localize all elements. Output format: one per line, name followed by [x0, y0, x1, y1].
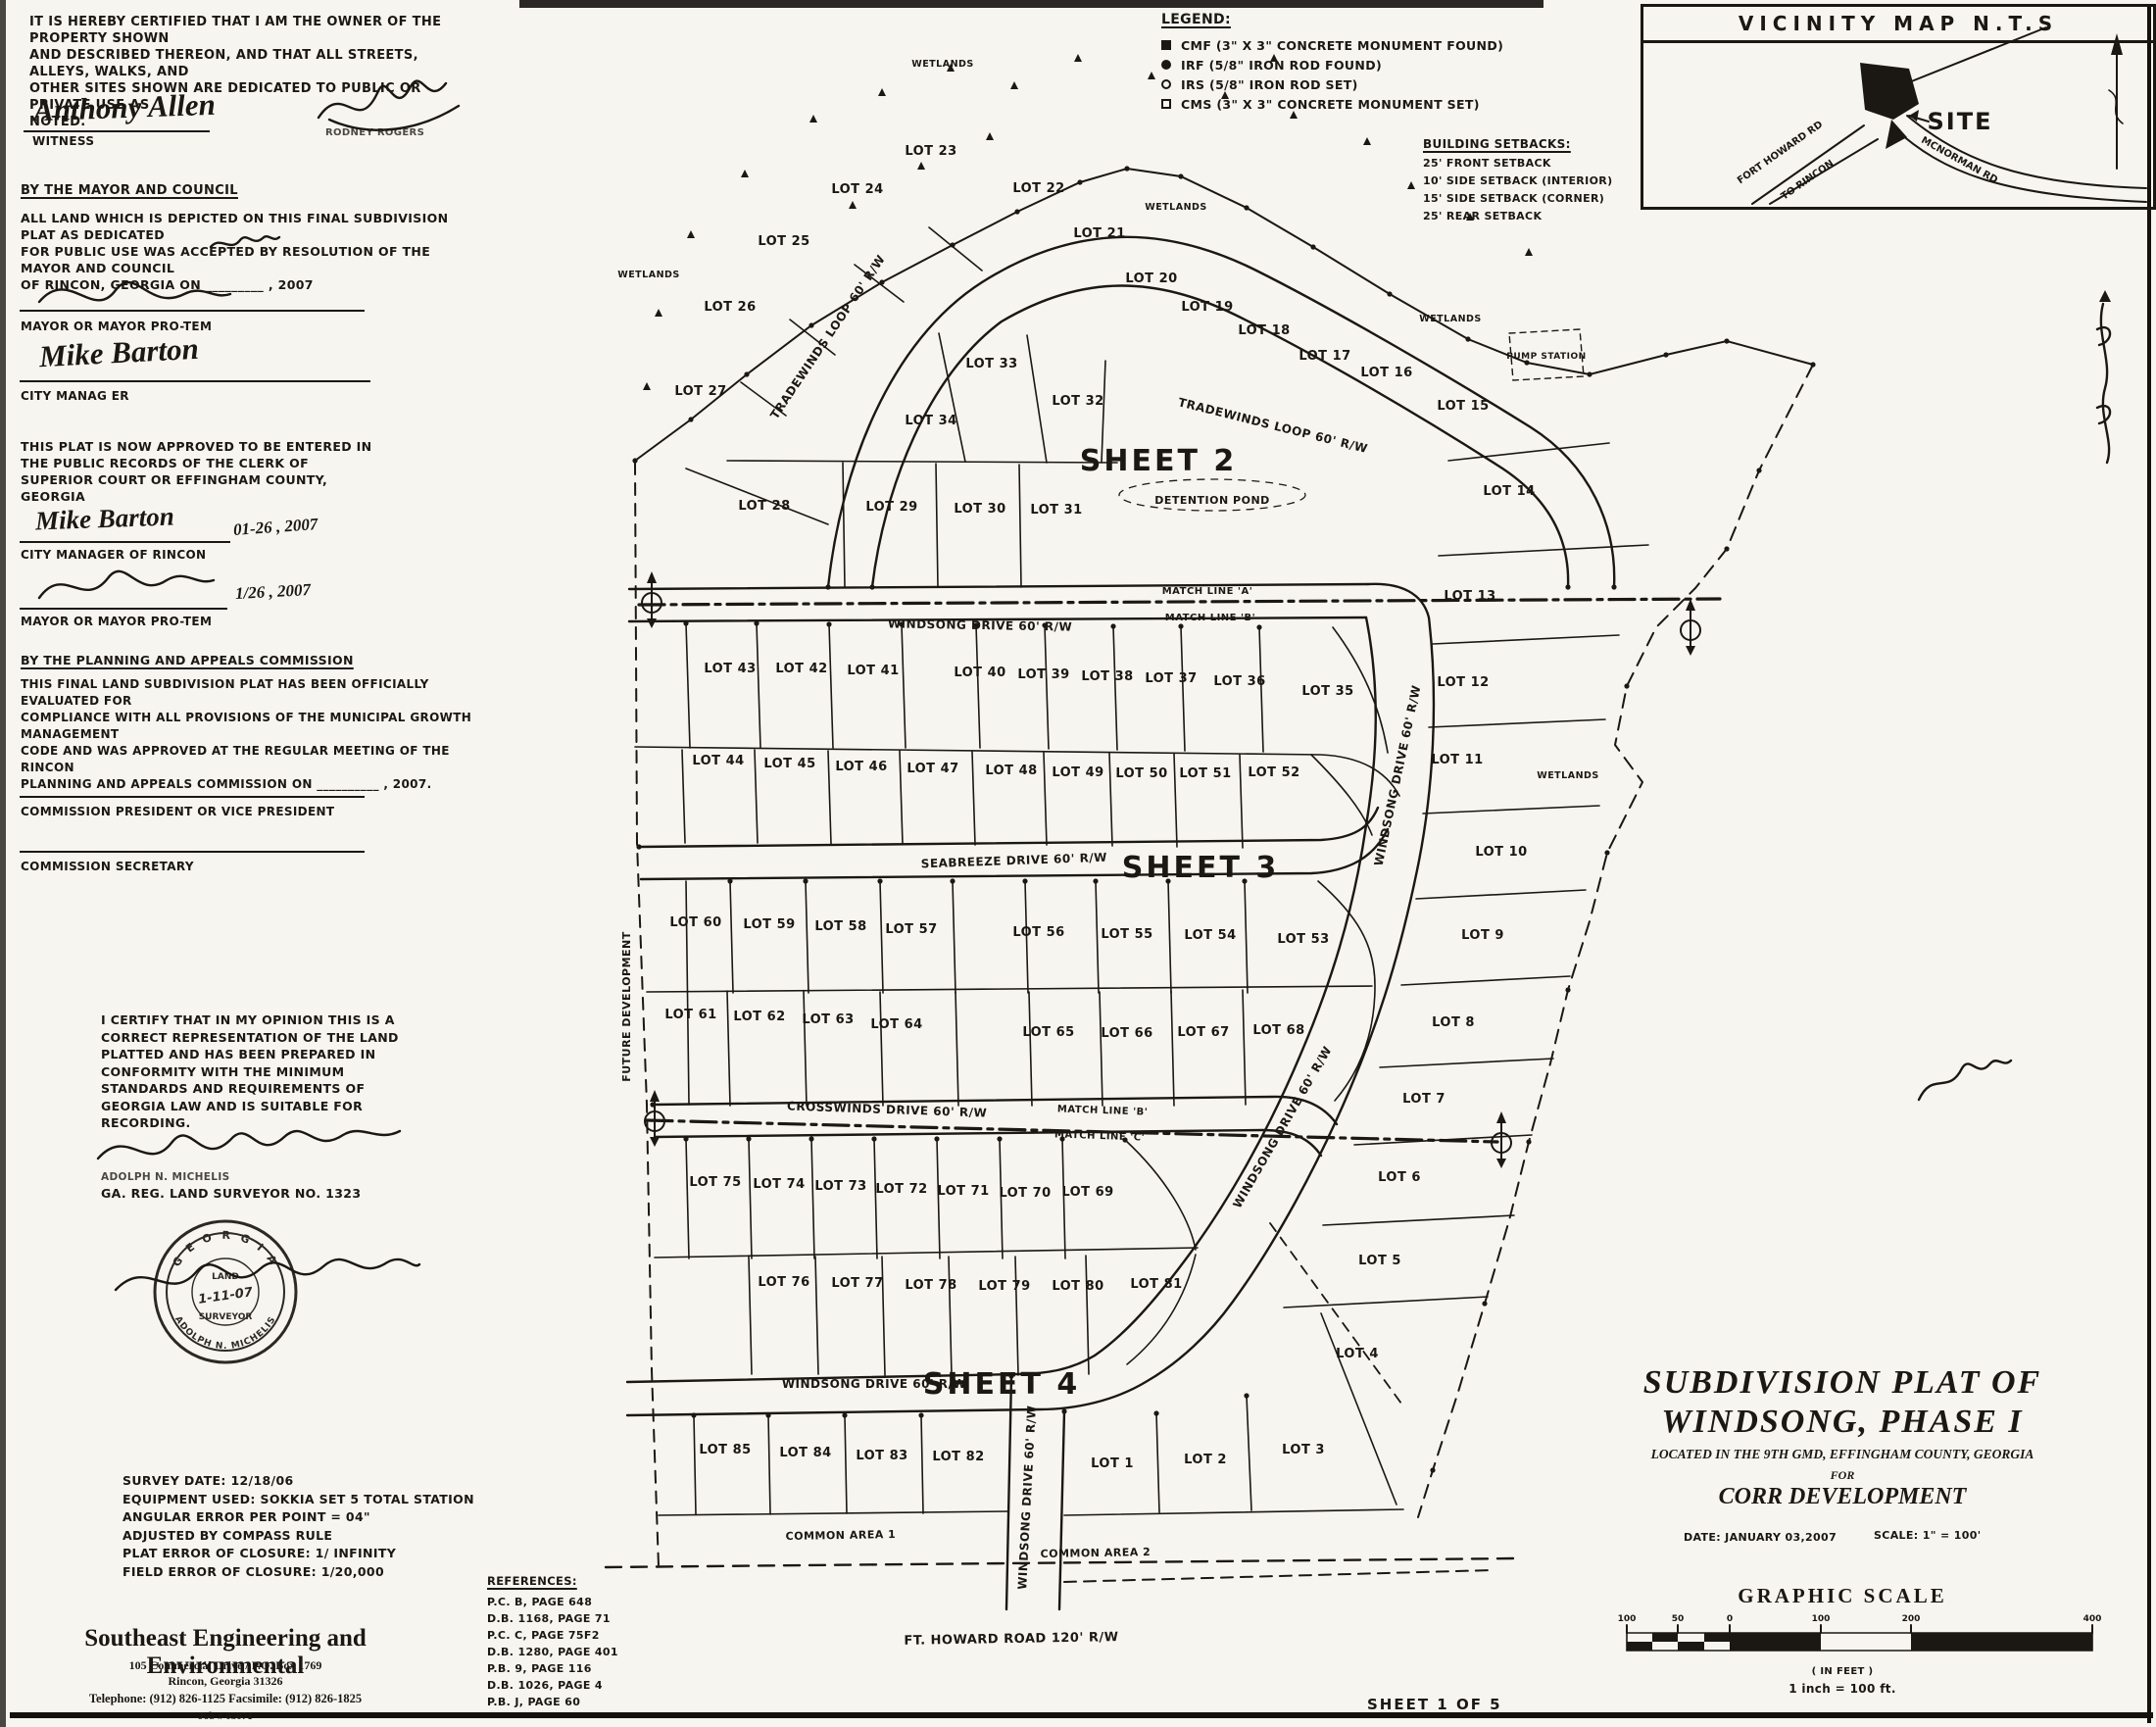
plat-line: [730, 881, 733, 993]
lot-label: LOT 23: [905, 144, 956, 159]
scale-tick-label: 100: [1618, 1614, 1637, 1624]
lot-label: LOT 7: [1402, 1092, 1445, 1107]
lot-label: LOT 46: [835, 760, 887, 774]
plat-line: [955, 992, 958, 1106]
plat-line: [655, 1248, 1198, 1258]
lot-label: LOT 21: [1073, 226, 1125, 241]
lot-label: LOT 79: [978, 1279, 1030, 1294]
plat-line: [921, 1415, 923, 1513]
lot-label: LOT 73: [814, 1179, 866, 1194]
survey-point-dot: [1256, 624, 1261, 629]
plat-line: [829, 624, 833, 748]
plat-sheet: SITEFORT HOWARD RDTO RINCONMCNORMAN RD10…: [0, 0, 2156, 1727]
lot-label: LOT 40: [954, 666, 1005, 680]
lot-label: LOT 50: [1115, 766, 1167, 781]
lot-label: LOT 47: [906, 762, 958, 776]
plat-line: [727, 461, 1117, 463]
lot-label: LOT 42: [775, 662, 827, 676]
match-line-north-icon: [1681, 599, 1700, 656]
lot-label: LOT 3: [1282, 1443, 1325, 1457]
setbacks-block: BUILDING SETBACKS: 25' FRONT SETBACK10' …: [1423, 137, 1612, 225]
legend-item: IRS (5/8" IRON ROD SET): [1161, 74, 1503, 94]
survey-point-dot: [691, 1412, 696, 1417]
street-label: COMMON AREA 2: [1040, 1546, 1151, 1560]
svg-text:LAND: LAND: [212, 1272, 239, 1282]
match-line-north-icon: [645, 1090, 664, 1147]
street-label: WETLANDS: [1145, 202, 1207, 213]
scale-bar-cell: [1704, 1642, 1730, 1651]
plat-line: [1045, 625, 1049, 749]
surveyor-name-label: ADOLPH N. MICHELIS: [101, 1171, 230, 1183]
plat-line: [639, 808, 1378, 847]
legend-item: CMS (3" X 3" CONCRETE MONUMENT SET): [1161, 94, 1503, 114]
scale-bar-cell: [1704, 1633, 1730, 1642]
street-label: SHEET 4: [923, 1367, 1080, 1402]
survey-point-dot: [1110, 623, 1115, 628]
plat-line: [806, 881, 808, 993]
plat-line: [653, 1097, 1337, 1124]
list-item: P.B. J, PAGE 60: [487, 1694, 618, 1710]
lot-label: LOT 59: [743, 917, 795, 932]
list-item: 25' FRONT SETBACK: [1423, 155, 1612, 173]
plat-line: [1156, 1413, 1159, 1512]
scale-tick-label: 200: [1902, 1614, 1921, 1624]
plat-line: [2099, 290, 2111, 302]
title-line-2: WINDSONG, PHASE I: [1568, 1404, 2117, 1441]
lot-label: LOT 9: [1461, 928, 1504, 943]
survey-point-dot: [842, 1412, 847, 1417]
lot-label: LOT 71: [937, 1184, 989, 1199]
survey-point-dot: [1565, 987, 1570, 992]
wetland-marker-icon: [1407, 181, 1415, 189]
plat-line: [1380, 1059, 1553, 1067]
plat-line: [1171, 991, 1174, 1106]
legend-items: CMF (3" X 3" CONCRETE MONUMENT FOUND)IRF…: [1161, 35, 1503, 114]
wetland-marker-icon: [687, 230, 695, 238]
lot-label: LOT 30: [954, 502, 1005, 517]
wetland-marker-icon: [809, 115, 817, 123]
lot-label: LOT 82: [932, 1450, 984, 1464]
survey-point-dot: [746, 1136, 751, 1141]
plat-line: [1247, 1396, 1251, 1510]
survey-point-dot: [1526, 1139, 1531, 1144]
plat-line: [639, 599, 1720, 605]
plat-line: [1006, 1376, 1011, 1609]
city-manager-signature-line-2: [20, 541, 230, 543]
list-item: 15' SIDE SETBACK (CORNER): [1423, 190, 1612, 208]
surveyor-registration-label: GA. REG. LAND SURVEYOR NO. 1323: [101, 1186, 361, 1201]
lot-label: LOT 19: [1181, 300, 1233, 315]
references-title: REFERENCES:: [487, 1574, 618, 1588]
legend-item-text: CMS (3" X 3" CONCRETE MONUMENT SET): [1181, 97, 1480, 112]
plat-line: [976, 625, 980, 748]
survey-point-dot: [871, 1136, 876, 1141]
wetland-marker-icon: [1363, 137, 1371, 145]
plat-line: [1919, 1061, 2011, 1100]
survey-point-dot: [1387, 291, 1392, 296]
commission-secretary-line: [20, 851, 365, 853]
plat-line: [1259, 627, 1263, 752]
svg-text:G E O R G I A: G E O R G I A: [170, 1229, 280, 1269]
plat-line: [1270, 1223, 1401, 1404]
survey-point-dot: [808, 1136, 813, 1141]
title-for-label: FOR: [1568, 1468, 2117, 1483]
plat-line: [1127, 1255, 1196, 1364]
mayor-council-text: ALL LAND WHICH IS DEPICTED ON THIS FINAL…: [21, 210, 471, 293]
street-label: WINDSONG DRIVE 60' R/W: [1372, 684, 1424, 867]
lot-label: LOT 1: [1091, 1456, 1134, 1471]
lot-label: LOT 35: [1301, 684, 1353, 699]
lot-label: LOT 31: [1030, 503, 1082, 518]
plat-line: [1100, 992, 1102, 1106]
street-label: CROSSWINDS DRIVE 60' R/W: [787, 1099, 988, 1119]
survey-point-dot: [683, 1136, 688, 1141]
scan-left-edge: [0, 0, 6, 1727]
lot-label: LOT 53: [1277, 932, 1329, 947]
lot-label: LOT 26: [704, 300, 756, 315]
survey-point-dot: [1014, 209, 1019, 214]
survey-point-dot: [688, 417, 693, 421]
legend-item: CMF (3" X 3" CONCRETE MONUMENT FOUND): [1161, 35, 1503, 55]
commission-president-line: [20, 796, 365, 798]
street-label: WINDSONG DRIVE 60' R/W: [1230, 1044, 1334, 1210]
wetland-marker-icon: [917, 162, 925, 170]
plat-line: [1019, 465, 1021, 587]
lot-label: LOT 39: [1017, 667, 1069, 682]
list-item: P.C. B, PAGE 648: [487, 1594, 618, 1610]
lot-label: LOT 60: [669, 915, 721, 930]
plat-line: [845, 1415, 847, 1513]
plat-line: [872, 285, 1568, 587]
survey-point-dot: [1663, 352, 1668, 357]
lot-label: LOT 58: [814, 919, 866, 934]
lot-label: LOT 36: [1213, 674, 1265, 689]
plat-line: [1240, 755, 1243, 848]
survey-point-dot: [1565, 584, 1570, 589]
plat-line: [1311, 755, 1372, 835]
plat-line: [727, 991, 730, 1106]
lot-label: LOT 12: [1437, 675, 1489, 690]
lot-label: LOT 80: [1052, 1279, 1103, 1294]
street-label: WETLANDS: [911, 59, 974, 70]
legend-block: LEGEND: CMF (3" X 3" CONCRETE MONUMENT F…: [1161, 12, 1503, 114]
title-scale: SCALE: 1" = 100': [1874, 1529, 1981, 1542]
wetland-marker-icon: [1074, 54, 1082, 62]
legend-title: LEGEND:: [1161, 12, 1503, 27]
plat-line: [1113, 626, 1117, 750]
plat-line: [39, 571, 214, 598]
street-label: WETLANDS: [1537, 770, 1599, 781]
street-label: MATCH LINE 'C': [1054, 1129, 1145, 1143]
lot-label: LOT 44: [692, 754, 744, 768]
lot-label: LOT 64: [870, 1017, 922, 1032]
plat-line: [98, 1131, 400, 1159]
plat-line: [815, 1257, 818, 1374]
mayor-signature-line-2: [20, 608, 227, 610]
planning-commission-text: THIS FINAL LAND SUBDIVISION PLAT HAS BEE…: [21, 676, 481, 793]
lot-label: LOT 14: [1483, 484, 1535, 499]
survey-point-dot: [803, 878, 808, 883]
plat-line: [1321, 1313, 1396, 1505]
mayor-council-heading: BY THE MAYOR AND COUNCIL: [21, 183, 238, 198]
commission-secretary-label: COMMISSION SECRETARY: [21, 860, 194, 873]
survey-point-dot: [826, 621, 831, 626]
lot-label: LOT 83: [856, 1449, 907, 1463]
scale-tick-label: 400: [2083, 1614, 2102, 1624]
city-manager-of-rincon-label: CITY MANAGER OF RINCON: [21, 548, 206, 562]
street-label: FT. HOWARD ROAD 120' R/W: [904, 1630, 1118, 1649]
planning-commission-heading: BY THE PLANNING AND APPEALS COMMISSION: [21, 653, 354, 667]
lot-label: LOT 72: [875, 1182, 927, 1197]
plat-line: [627, 617, 1376, 1382]
lot-label: LOT 56: [1012, 925, 1064, 940]
lot-label: LOT 33: [965, 357, 1017, 371]
street-label: TRADEWINDS LOOP 60' R/W: [767, 252, 888, 421]
survey-point-dot: [934, 1136, 939, 1141]
plat-line: [880, 992, 883, 1106]
plat-line: [686, 623, 690, 748]
street-label: MATCH LINE 'B': [1165, 613, 1255, 623]
survey-point-dot: [1061, 1408, 1066, 1413]
clerk-approval-text: THIS PLAT IS NOW APPROVED TO BE ENTERED …: [21, 438, 432, 505]
street-label: WETLANDS: [1419, 314, 1482, 324]
wetland-marker-icon: [986, 132, 994, 140]
title-date: DATE: JANUARY 03,2007: [1684, 1531, 1837, 1544]
lot-label: LOT 5: [1358, 1254, 1401, 1268]
survey-info-block: SURVEY DATE: 12/18/06 EQUIPMENT USED: SO…: [122, 1472, 534, 1581]
lot-label: LOT 52: [1248, 765, 1299, 780]
lot-label: LOT 6: [1378, 1170, 1421, 1185]
title-client-name: CORR DEVELOPMENT: [1568, 1484, 2117, 1510]
list-item: P.C. C, PAGE 75F2: [487, 1627, 618, 1644]
lot-label: LOT 66: [1101, 1026, 1152, 1041]
graphic-scale-in-feet: ( IN FEET ): [1705, 1666, 1980, 1677]
survey-point-dot: [950, 878, 955, 883]
witness-signature-line: [24, 130, 210, 132]
survey-point-dot: [1724, 546, 1729, 551]
plat-line: [686, 469, 828, 524]
survey-point-dot: [1178, 623, 1183, 628]
survey-point-dot: [1022, 878, 1027, 883]
lot-label: LOT 55: [1101, 927, 1152, 942]
survey-point-dot: [1624, 683, 1629, 688]
lot-label: LOT 68: [1252, 1023, 1304, 1038]
lot-label: LOT 13: [1444, 589, 1495, 604]
plat-line: [1429, 719, 1605, 727]
survey-point-dot: [1482, 1301, 1487, 1306]
firm-address-2: Rincon, Georgia 31326: [10, 1674, 441, 1689]
plat-line: [939, 333, 965, 462]
plat-line: [1044, 753, 1047, 845]
lot-label: LOT 76: [758, 1275, 809, 1290]
survey-point-dot: [918, 1412, 923, 1417]
references-items: P.C. B, PAGE 648D.B. 1168, PAGE 71P.C. C…: [487, 1594, 618, 1710]
lot-label: LOT 43: [704, 662, 756, 676]
lot-label: LOT 67: [1177, 1025, 1229, 1040]
square-open-icon: [1161, 99, 1171, 109]
plat-line: [694, 1415, 696, 1514]
circle-filled-icon: [1161, 60, 1171, 70]
survey-point-dot: [1178, 173, 1183, 178]
plat-line: [828, 751, 831, 844]
scale-bar-segment: [1730, 1633, 1821, 1651]
survey-point-dot: [765, 1412, 770, 1417]
plat-line: [635, 463, 659, 1566]
firm-job-number: Job # 05071: [10, 1710, 441, 1722]
survey-point-dot: [754, 620, 759, 625]
street-label: MATCH LINE 'A': [1162, 586, 1253, 597]
plat-line: [874, 1139, 877, 1258]
legend-item-text: CMF (3" X 3" CONCRETE MONUMENT FOUND): [1181, 38, 1503, 53]
lot-label: LOT 78: [905, 1278, 956, 1293]
street-label: WINDSONG DRIVE 60' R/W: [1015, 1405, 1039, 1590]
survey-point-dot: [1124, 166, 1129, 171]
plat-line: [882, 1257, 885, 1375]
plat-line: [1423, 806, 1599, 814]
lot-label: LOT 10: [1475, 845, 1527, 860]
street-label: WETLANDS: [617, 270, 680, 280]
plat-line: [1181, 626, 1185, 751]
lot-label: LOT 85: [699, 1443, 751, 1457]
lot-label: LOT 27: [674, 384, 726, 399]
street-label: MATCH LINE 'B': [1057, 1104, 1149, 1117]
lot-label: LOT 18: [1238, 323, 1290, 338]
lot-label: LOT 34: [905, 414, 956, 428]
lot-label: LOT 74: [753, 1177, 805, 1192]
street-label: SHEET 2: [1080, 444, 1237, 478]
survey-point-dot: [879, 279, 884, 284]
survey-point-dot: [869, 584, 874, 589]
plat-line: [1086, 1256, 1089, 1374]
plat-line: [1125, 1140, 1196, 1250]
plat-line: [1059, 1411, 1064, 1609]
lot-label: LOT 84: [779, 1446, 831, 1460]
title-line-1: SUBDIVISION PLAT OF: [1568, 1364, 2117, 1402]
wetland-marker-icon: [655, 309, 662, 317]
plat-line: [1174, 754, 1177, 847]
plat-line: [1323, 1215, 1514, 1225]
plat-line: [953, 881, 955, 993]
survey-point-dot: [1077, 179, 1082, 184]
plat-line: [1284, 1297, 1488, 1308]
scale-bar-cell: [1652, 1642, 1678, 1651]
plat-line: [949, 1257, 952, 1375]
wetland-marker-icon: [1525, 248, 1533, 256]
legend-item: IRF (5/8" IRON ROD FOUND): [1161, 55, 1503, 74]
plat-line: [1245, 881, 1248, 993]
match-line-north-icon: [642, 571, 661, 628]
survey-point-dot: [744, 371, 749, 376]
plat-line: [1439, 545, 1648, 556]
survey-point-dot: [727, 878, 732, 883]
survey-point-dot: [1611, 584, 1616, 589]
plat-line: [936, 464, 938, 587]
title-located-line: LOCATED IN THE 9TH GMD, EFFINGHAM COUNTY…: [1568, 1447, 2117, 1462]
plat-line: [1354, 1135, 1532, 1145]
plat-line: [900, 751, 903, 844]
lot-label: LOT 32: [1052, 394, 1103, 409]
city-manager-signature-2: Mike Barton: [35, 502, 175, 537]
vicinity-map: VICINITY MAP N.T.S: [1641, 4, 2156, 210]
survey-point-dot: [1310, 244, 1315, 249]
lot-label: LOT 4: [1336, 1347, 1379, 1361]
graphic-scale-inch-note: 1 inch = 100 ft.: [1705, 1682, 1980, 1696]
lot-label: LOT 24: [831, 182, 883, 197]
references-block: REFERENCES: P.C. B, PAGE 648D.B. 1168, P…: [487, 1574, 618, 1710]
list-item: D.B. 1168, PAGE 71: [487, 1610, 618, 1627]
lot-label: LOT 2: [1184, 1453, 1227, 1467]
wetland-marker-icon: [1010, 81, 1018, 89]
plat-line: [755, 750, 758, 843]
lot-label: LOT 61: [664, 1008, 716, 1022]
lot-label: LOT 28: [738, 499, 790, 514]
wetland-marker-icon: [1148, 72, 1155, 79]
commission-president-label: COMMISSION PRESIDENT OR VICE PRESIDENT: [21, 805, 334, 818]
street-label: SEABREEZE DRIVE 60' R/W: [921, 851, 1108, 871]
survey-point-dot: [825, 584, 830, 589]
survey-point-dot: [1587, 371, 1592, 376]
street-label: PUMP STATION: [1506, 352, 1586, 362]
witness-label: WITNESS: [32, 134, 94, 148]
scale-tick-label: 100: [1812, 1614, 1831, 1624]
scale-tick-label: 0: [1727, 1614, 1733, 1624]
survey-point-dot: [1604, 850, 1609, 855]
scale-bar-cell: [1627, 1642, 1652, 1651]
plat-line: [682, 750, 685, 843]
survey-point-dot: [636, 844, 641, 849]
plat-line: [1401, 976, 1570, 985]
plat-line: [937, 1139, 940, 1258]
lot-label: LOT 22: [1012, 181, 1064, 196]
survey-point-dot: [632, 458, 637, 463]
firm-phones: Telephone: (912) 826-1125 Facsimile: (91…: [10, 1692, 441, 1706]
lot-label: LOT 69: [1061, 1185, 1113, 1200]
wetland-marker-icon: [741, 170, 749, 177]
survey-point-dot: [877, 878, 882, 883]
survey-point-dot: [1430, 1467, 1435, 1472]
plat-line: [1064, 1570, 1492, 1582]
plat-line: [972, 752, 975, 845]
owner-name-label: RODNEY ROGERS: [325, 127, 424, 138]
plat-line: [629, 584, 1368, 589]
lot-label: LOT 77: [831, 1276, 883, 1291]
plat-line: [902, 624, 906, 748]
survey-point-dot: [1810, 362, 1815, 367]
wetland-marker-icon: [878, 88, 886, 96]
witness-signature: Anthony Allen: [32, 87, 216, 128]
svg-text:1-11-07: 1-11-07: [197, 1285, 255, 1308]
plat-line: [1027, 335, 1047, 463]
survey-point-dot: [1244, 205, 1249, 210]
svg-text:SURVEYOR: SURVEYOR: [199, 1312, 253, 1322]
lot-label: LOT 54: [1184, 928, 1236, 943]
plat-line: [2097, 304, 2110, 463]
lot-label: LOT 15: [1437, 399, 1489, 414]
lot-label: LOT 38: [1081, 669, 1133, 684]
plat-line: [749, 1257, 752, 1374]
setbacks-items: 25' FRONT SETBACK10' SIDE SETBACK (INTER…: [1423, 155, 1612, 225]
plat-line: [1168, 881, 1171, 993]
lot-label: LOT 29: [865, 500, 917, 515]
lot-label: LOT 57: [885, 922, 937, 937]
list-item: 25' REAR SETBACK: [1423, 208, 1612, 225]
plat-line: [1029, 992, 1032, 1106]
lot-label: LOT 65: [1022, 1025, 1074, 1040]
plat-line: [1416, 890, 1586, 899]
street-label: SHEET 3: [1122, 851, 1279, 885]
survey-point-dot: [1724, 338, 1729, 343]
survey-point-dot: [683, 620, 688, 625]
